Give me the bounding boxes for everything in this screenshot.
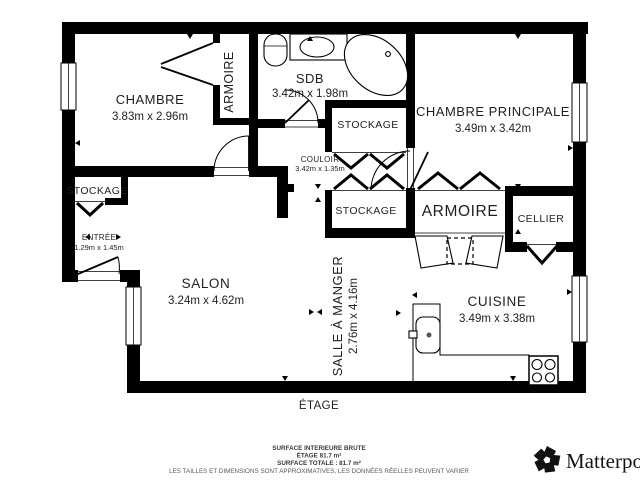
footer-etage-surface: ÉTAGE 81.7 m²: [297, 451, 342, 460]
matterport-logo: Matterport: [531, 446, 640, 477]
chambre-principale-window-icon: [572, 83, 587, 142]
armoire-sliding-panel-icon: [413, 233, 505, 268]
stockage-couloir-label: STOCKAGE: [335, 205, 396, 217]
floor-plan-svg: CHAMBRE 3.83m x 2.96m SDB 3.42m x 1.98m …: [0, 0, 640, 480]
chambre-door-icon: [214, 136, 249, 176]
footer-surface-totale: SURFACE TOTALE : 81.7 m²: [277, 460, 361, 467]
stockage-entree-label: STOCKAGE: [66, 185, 127, 197]
chambre-dims: 3.83m x 2.96m: [112, 111, 188, 123]
salon-window-icon: [126, 287, 141, 345]
cuisine-label: CUISINE: [468, 294, 527, 309]
room-labels: CHAMBRE 3.83m x 2.96m SDB 3.42m x 1.98m …: [66, 51, 570, 412]
matterport-logo-icon: [531, 446, 563, 477]
entree-label: ENTRÉE: [82, 233, 116, 242]
entree-door-icon: [78, 257, 120, 281]
chambre-principale-label: CHAMBRE PRINCIPALE: [416, 104, 570, 119]
floor-plan-page: CHAMBRE 3.83m x 2.96m SDB 3.42m x 1.98m …: [0, 0, 640, 480]
toilet-icon: [264, 34, 287, 66]
cellier-label: CELLIER: [518, 213, 565, 225]
armoire-double-door-icon: [161, 43, 213, 85]
armoire-couloir-folding-door-icon: [415, 173, 505, 191]
salon-dims: 3.24m x 4.62m: [168, 295, 244, 307]
stockage-entree-folding-door-icon: [75, 202, 105, 216]
armoire-couloir-label: ARMOIRE: [422, 203, 499, 220]
footer-disclaimer: LES TAILLES ET DIMENSIONS SONT APPROXIMA…: [169, 466, 469, 475]
salon-label: SALON: [182, 276, 231, 291]
chambre-window-icon: [61, 63, 76, 110]
armoire-chambre-label: ARMOIRE: [222, 51, 236, 112]
stove-icon: [529, 356, 558, 385]
matterport-wordmark: Matterport: [566, 449, 640, 473]
sdb-label: SDB: [296, 71, 324, 86]
salle-a-manger-label: SALLE À MANGER: [330, 256, 345, 376]
salle-a-manger-dims: 2.76m x 4.16m: [348, 278, 360, 354]
stockage-couloir-folding-door-icon: [332, 175, 406, 191]
kitchen-sink-icon: [409, 317, 440, 353]
stockage-sdb-label: STOCKAGE: [337, 119, 398, 131]
footer: SURFACE INTERIEURE BRUTE ÉTAGE 81.7 m² S…: [169, 445, 469, 475]
cuisine-window-icon: [572, 276, 587, 342]
cellier-folding-door-icon: [527, 245, 557, 264]
floor-label: ÉTAGE: [299, 399, 339, 412]
footer-surface-brute: SURFACE INTERIEURE BRUTE: [272, 445, 365, 452]
bathroom-sink-icon: [290, 34, 347, 60]
couloir-dims: 3.42m x 1.35m: [295, 164, 345, 173]
chambre-label: CHAMBRE: [116, 92, 185, 107]
chambre-principale-dims: 3.49m x 3.42m: [455, 123, 531, 135]
sdb-dims: 3.42m x 1.98m: [272, 88, 348, 100]
entree-dims: 1.29m x 1.45m: [74, 243, 124, 252]
dimension-ticks: [75, 34, 573, 381]
couloir-label: COULOIR: [301, 155, 340, 164]
cuisine-dims: 3.49m x 3.38m: [459, 313, 535, 325]
